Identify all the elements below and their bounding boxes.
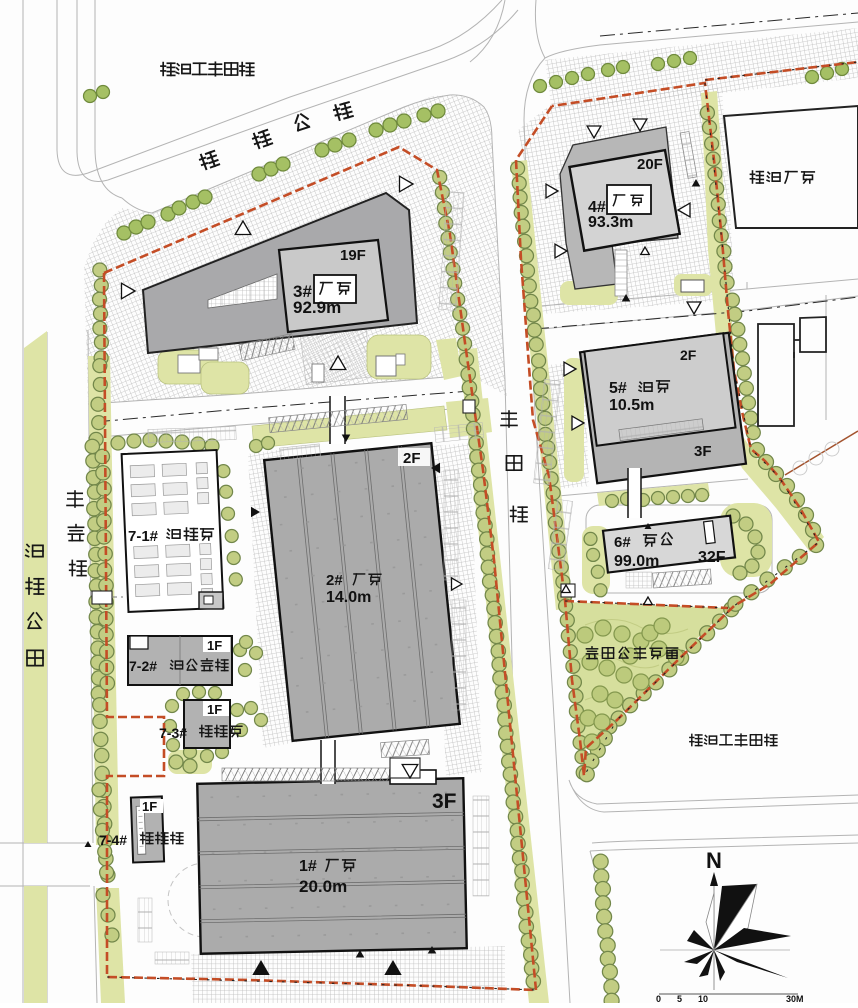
svg-text:1F: 1F <box>142 799 157 814</box>
svg-text:N: N <box>706 848 722 873</box>
svg-text:93.3m: 93.3m <box>588 214 633 231</box>
svg-text:20F: 20F <box>637 156 663 173</box>
svg-text:20.0m: 20.0m <box>299 877 347 896</box>
svg-text:7-1#: 7-1# <box>128 528 159 545</box>
svg-text:99.0m: 99.0m <box>614 553 659 570</box>
svg-text:0: 0 <box>656 994 661 1003</box>
svg-text:14.0m: 14.0m <box>326 589 371 606</box>
svg-text:1F: 1F <box>207 702 222 717</box>
svg-text:2F: 2F <box>680 347 697 363</box>
svg-text:7-4#: 7-4# <box>99 832 127 848</box>
svg-text:92.9m: 92.9m <box>293 298 341 317</box>
svg-text:10: 10 <box>698 994 708 1003</box>
svg-text:32F: 32F <box>698 549 726 566</box>
svg-text:5#: 5# <box>609 380 627 397</box>
svg-text:1#: 1# <box>299 858 317 875</box>
svg-text:2F: 2F <box>403 450 421 467</box>
svg-text:19F: 19F <box>340 247 366 264</box>
svg-text:30M: 30M <box>786 994 804 1003</box>
svg-text:3F: 3F <box>432 790 457 813</box>
svg-text:7-2#: 7-2# <box>129 658 157 674</box>
svg-text:5: 5 <box>677 994 682 1003</box>
svg-text:7-3#: 7-3# <box>159 725 187 741</box>
svg-text:10.5m: 10.5m <box>609 397 654 414</box>
svg-text:1F: 1F <box>207 638 222 653</box>
svg-text:3F: 3F <box>694 443 712 460</box>
svg-text:6#: 6# <box>614 534 631 551</box>
svg-text:2#: 2# <box>326 572 343 589</box>
